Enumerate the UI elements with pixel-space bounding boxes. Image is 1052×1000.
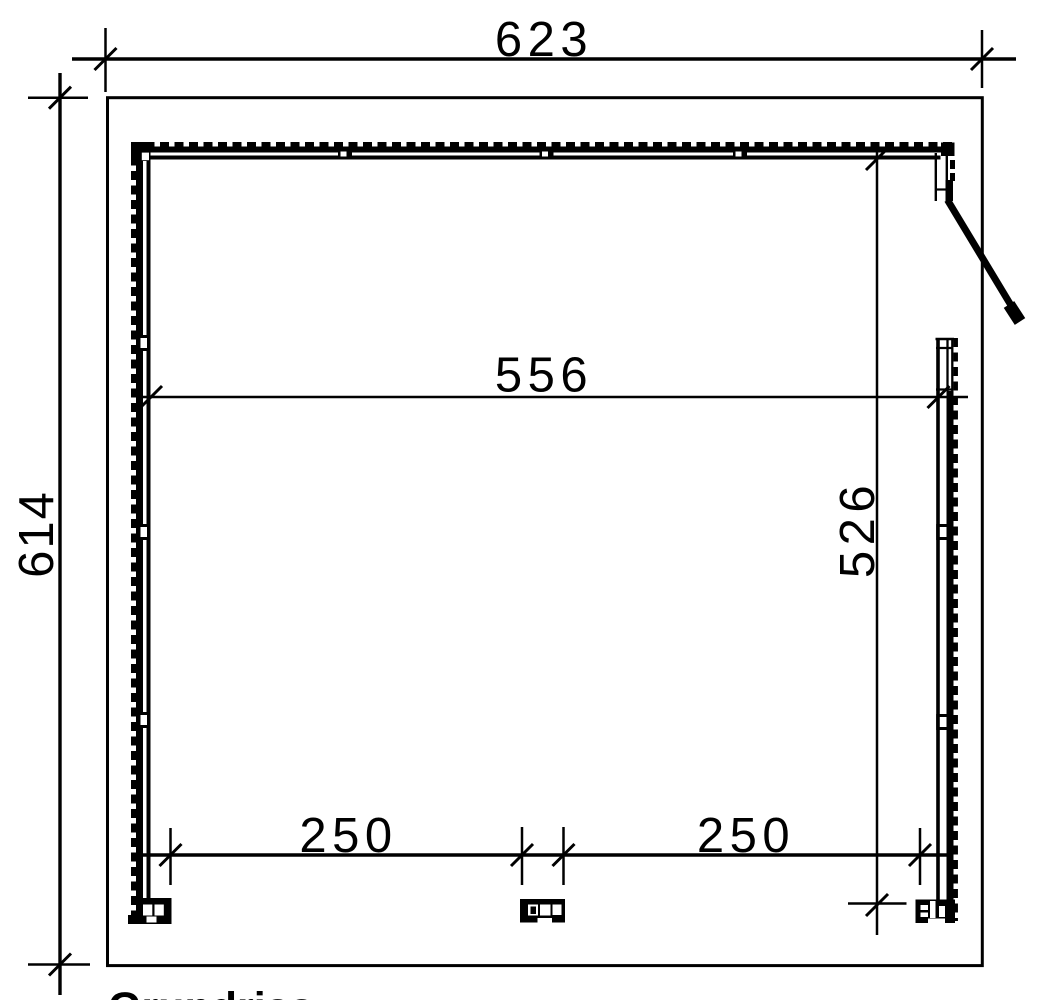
svg-text:Grundriss: Grundriss <box>108 984 314 1000</box>
svg-text:526: 526 <box>831 480 885 578</box>
svg-text:556: 556 <box>495 349 593 403</box>
svg-text:614: 614 <box>10 490 64 578</box>
svg-text:250: 250 <box>299 809 397 863</box>
svg-text:623: 623 <box>495 13 593 67</box>
svg-text:250: 250 <box>697 809 795 863</box>
